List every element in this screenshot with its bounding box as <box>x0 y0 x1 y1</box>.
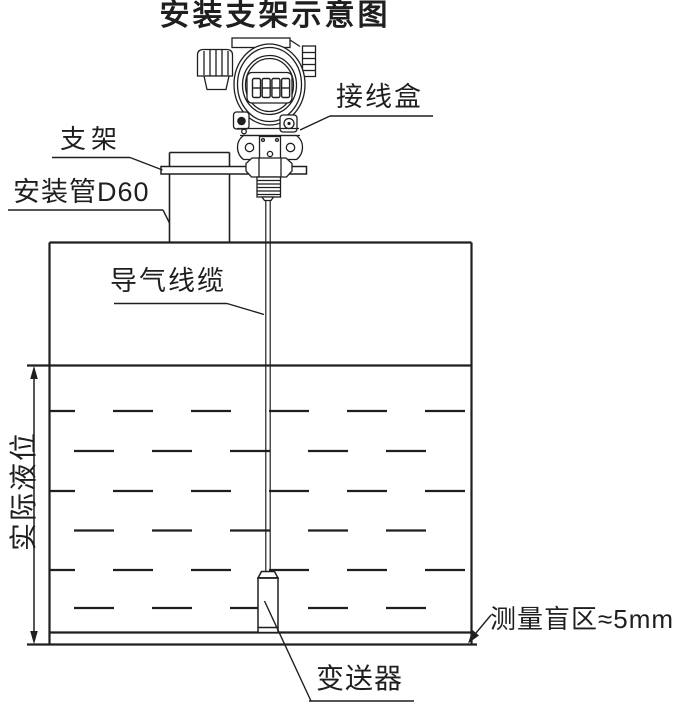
hex-nut-drawing <box>246 158 292 177</box>
blind-zone-label: 测量盲区≈5mm <box>490 606 674 633</box>
mounting-pipe-label: 安装管D60 <box>13 178 150 206</box>
sensor-cable-drawing <box>266 201 270 572</box>
leader-air-cable <box>114 304 264 315</box>
junction-box-label: 接线盒 <box>336 83 423 111</box>
tank-outline <box>27 243 477 645</box>
diagram-title: 安装支架示意图 <box>145 0 405 32</box>
bracket-label: 支架 <box>60 126 122 153</box>
neck-drawing <box>238 136 303 160</box>
air-cable-label: 导气线缆 <box>110 267 226 295</box>
installation-diagram: 安装支架示意图 接线盒 支架 安装管D60 导气线缆 实际液位 测量盲区≈5mm… <box>0 0 700 708</box>
terminal-fins-drawing <box>303 46 316 77</box>
actual-level-label: 实际液位 <box>9 401 39 581</box>
cable-gland-drawing <box>198 50 233 90</box>
leader-mounting-pipe <box>8 210 170 223</box>
leader-bracket <box>52 158 163 171</box>
liquid-level-dashes <box>35 411 466 608</box>
leader-junction-box <box>300 116 433 130</box>
transmitter-head-drawing <box>198 38 316 201</box>
threaded-stub-drawing <box>257 177 281 201</box>
transmitter-label: 变送器 <box>316 664 403 693</box>
lcd-display <box>247 73 292 104</box>
